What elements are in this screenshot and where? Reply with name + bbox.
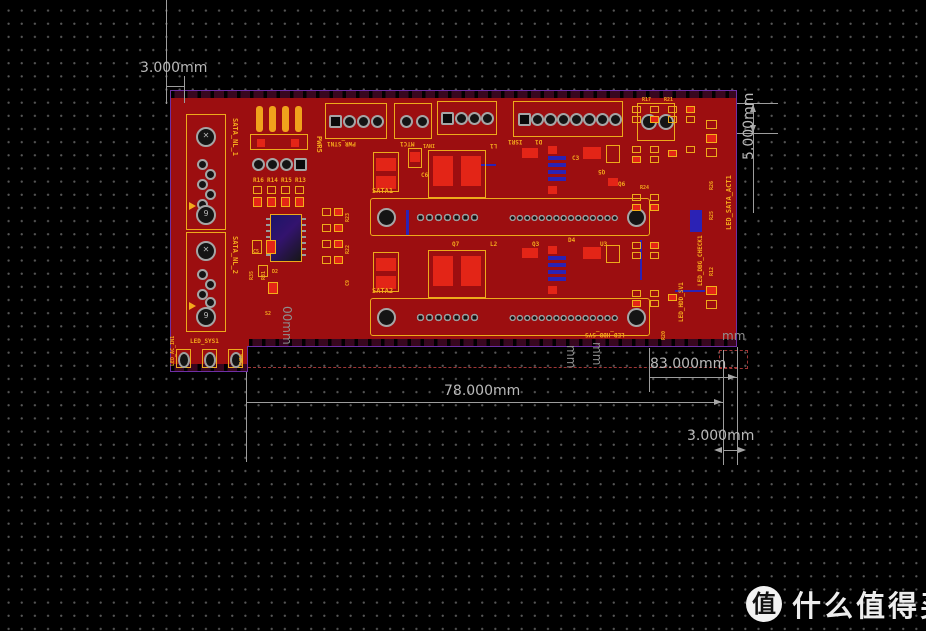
pad: [205, 279, 216, 290]
smd-pad: [291, 139, 299, 147]
label-l1: L1: [490, 142, 497, 148]
pad-mark: 9: [203, 311, 208, 320]
label-s2: S2: [265, 312, 271, 317]
pad-mark: ✕: [203, 131, 210, 140]
label-inv1: INV1: [423, 142, 435, 147]
passive: [650, 146, 659, 153]
label-sata-nl-2: SATA_NL_2: [229, 236, 238, 318]
passive: [706, 286, 717, 295]
resistor: [295, 197, 304, 207]
smd-pad: [522, 148, 538, 158]
smd-pad: [433, 156, 453, 186]
passive: [334, 256, 343, 264]
dim-line: [166, 86, 185, 87]
dim-bottom-right[interactable]: 3.000mm: [687, 429, 754, 443]
label-r23: R23: [346, 202, 352, 222]
mount-pad: [627, 308, 646, 327]
pad-9: 9: [196, 307, 216, 327]
smd-pad: [257, 139, 265, 147]
passive: [686, 116, 695, 123]
component-frame: [606, 145, 620, 163]
label-sata-nl-1: SATA_NL_1: [229, 118, 238, 200]
connector-sata-nl-1[interactable]: ✕ 9: [186, 114, 226, 230]
passive: [632, 204, 641, 211]
pad-square: [329, 115, 342, 128]
dim-fragment-mid-b: mm: [591, 342, 603, 372]
pad-9: 9: [196, 205, 216, 225]
label-r22: R22: [346, 234, 352, 254]
ic-u1[interactable]: [270, 214, 302, 262]
pad: [252, 158, 265, 171]
pad-keyed: ✕: [196, 241, 216, 261]
smd-pad: [522, 248, 538, 258]
dim-arrow: [728, 374, 736, 380]
dim-line-83: [649, 377, 737, 378]
pad-square: [518, 113, 531, 126]
pad: [205, 169, 216, 180]
smzdm-logo-icon: 值: [746, 586, 782, 622]
passive: [632, 156, 641, 163]
pad-mark: ✕: [203, 245, 210, 254]
label-led-dbg-check1: LED_DBG_CHECK1: [698, 194, 705, 286]
dim-line-3: [723, 450, 737, 451]
passive: [650, 300, 659, 307]
pad: [266, 158, 279, 171]
label-d4: D4: [568, 238, 575, 244]
mount-pad: [377, 308, 396, 327]
resistor: [295, 186, 304, 194]
smd-pad: [548, 286, 557, 294]
label-u3: U3: [600, 242, 607, 248]
label-r20: R20: [662, 314, 667, 340]
dim-arrow: [738, 447, 746, 453]
pad-row: [509, 213, 619, 223]
passive: [632, 106, 641, 113]
smd-pad: [376, 258, 396, 271]
led-footprint[interactable]: [202, 349, 217, 368]
dim-arrow: [714, 447, 722, 453]
passive: [322, 208, 331, 216]
smd-pad: [433, 256, 453, 286]
pad: [531, 113, 544, 126]
label-q7: Q7: [452, 242, 459, 248]
label-r25: R25: [710, 194, 715, 220]
passive: [650, 252, 659, 259]
pad: [400, 115, 413, 128]
label-l2: L2: [490, 242, 497, 248]
passive: [650, 290, 659, 297]
smd-pad: [583, 147, 601, 159]
connector-8pin[interactable]: [513, 101, 623, 137]
dim-right-height[interactable]: 5.000mm: [742, 86, 756, 160]
label-q6: Q6: [618, 182, 625, 188]
label-r12: R12: [710, 250, 715, 276]
label-sata1: SATA1: [372, 188, 393, 195]
dim-fragment-mid-a: mm: [565, 345, 577, 371]
pad: [544, 113, 557, 126]
pad: [205, 189, 216, 200]
inductor-coil: [548, 256, 566, 283]
dim-fragment-corner: mm: [722, 330, 745, 342]
passive: [632, 242, 641, 249]
label-r16: R16: [253, 178, 264, 184]
connector-sata1[interactable]: [370, 198, 650, 236]
pad: [596, 113, 609, 126]
label-r17: R17: [642, 98, 651, 103]
connector-mtc1[interactable]: [394, 103, 432, 139]
label-q3: Q3: [532, 242, 539, 248]
led-footprint[interactable]: [176, 349, 191, 368]
header-pin: [282, 106, 289, 132]
resistor: [281, 197, 290, 207]
label-led-ac-in1: LED_AC_IN1: [171, 322, 177, 366]
passive: [650, 194, 659, 201]
passive: [632, 116, 641, 123]
smd-pad: [583, 247, 601, 259]
pad-row: [416, 312, 479, 323]
resistor: [253, 197, 262, 207]
header-base[interactable]: [250, 134, 308, 150]
header-pin: [256, 106, 263, 132]
label-led-sata-act1: LED_SATA_ACT1: [726, 130, 734, 230]
label-r14: R14: [267, 178, 278, 184]
pin1-triangle-icon: [189, 302, 196, 310]
resistor: [281, 186, 290, 194]
smd-pad: [548, 146, 557, 154]
passive: [334, 208, 343, 216]
connector-pwr-stn1[interactable]: [325, 103, 387, 139]
passive: [266, 240, 276, 254]
pad: [583, 113, 596, 126]
smd-pad: [548, 246, 557, 254]
pad: [197, 159, 208, 170]
dim-ext-line: [246, 372, 247, 462]
label-isr1: ISR1: [508, 138, 522, 144]
smd-pad: [608, 178, 618, 186]
passive: [706, 300, 717, 309]
component-frame: [606, 245, 620, 263]
passive: [334, 224, 343, 232]
mount-pad: [377, 208, 396, 227]
label-c5: C5: [253, 250, 259, 255]
pcb-board[interactable]: ✕ 9 SATA_NL_1 ✕ 9 SATA_NL_2 PWR: [170, 90, 737, 372]
pad: [343, 115, 356, 128]
pad-square: [441, 112, 454, 125]
dim-fragment-left: 00mm: [280, 306, 293, 370]
passive: [686, 106, 695, 113]
passive: [668, 116, 677, 123]
passive: [650, 204, 659, 211]
passive: [632, 194, 641, 201]
passive: [706, 148, 717, 157]
label-c3: C3: [572, 156, 579, 162]
pad: [557, 113, 570, 126]
dim-top-left[interactable]: 3.000mm: [140, 61, 207, 75]
smd-pad: [376, 158, 396, 171]
passive: [706, 120, 717, 129]
smd-pad: [461, 156, 481, 186]
pad: [357, 115, 370, 128]
label-r15: R15: [281, 178, 292, 184]
label-r24: R24: [640, 186, 649, 191]
pcb-editor-canvas[interactable]: ✕ 9 SATA_NL_1 ✕ 9 SATA_NL_2 PWR: [0, 0, 926, 631]
label-pwr5: PWR5: [314, 136, 322, 168]
label-d1: D1: [535, 138, 542, 144]
dim-width-total[interactable]: 83.000mm: [650, 357, 726, 371]
smd-pad: [410, 152, 420, 162]
label-led-sys1: LED_SYS1: [190, 339, 219, 345]
passive: [334, 240, 343, 248]
passive: [668, 106, 677, 113]
watermark-site-name: 什么值得买: [792, 583, 926, 625]
pad: [468, 112, 481, 125]
passive: [650, 156, 659, 163]
ic-pins: [302, 218, 306, 260]
dim-line-78: [246, 402, 723, 403]
header-pin: [295, 106, 302, 132]
passive: [650, 242, 659, 249]
pad: [197, 269, 208, 280]
passive: [258, 265, 268, 277]
pad: [280, 158, 293, 171]
smd-pad: [461, 256, 481, 286]
label-mtc1: MTC1: [400, 140, 414, 146]
pad: [570, 113, 583, 126]
label-r21: R21: [664, 98, 673, 103]
passive: [650, 116, 659, 123]
passive: [322, 240, 331, 248]
label-r13: R13: [295, 178, 306, 184]
passive: [632, 290, 641, 297]
dim-width-inner[interactable]: 78.000mm: [444, 384, 520, 398]
watermark: 值 什么值得买: [746, 583, 926, 625]
connector-sata-nl-2[interactable]: ✕ 9: [186, 232, 226, 332]
passive: [268, 282, 278, 294]
resistor: [267, 197, 276, 207]
label-pwr4: PWR4: [240, 336, 246, 366]
passive: [686, 146, 695, 153]
passive: [668, 150, 677, 157]
label-r26: R26: [710, 164, 715, 190]
pad: [416, 115, 429, 128]
passive: [632, 146, 641, 153]
label-c9: C9: [346, 266, 352, 286]
pad-row: [509, 313, 619, 323]
passive: [632, 300, 641, 307]
passive: [668, 294, 677, 301]
pad-keyed: ✕: [196, 127, 216, 147]
smd-pad: [548, 186, 557, 194]
header-pin: [269, 106, 276, 132]
board-bottom-edge: [249, 339, 736, 346]
pad-row: [416, 212, 479, 223]
passive: [706, 134, 717, 143]
connector-4pin[interactable]: [437, 101, 497, 135]
label-sata2: SATA2: [372, 288, 393, 295]
passive: [322, 224, 331, 232]
resistor: [267, 186, 276, 194]
passive: [650, 106, 659, 113]
label-led-hdd-sv1: LED_HDD_SV1: [679, 240, 686, 322]
board-top-edge: [171, 91, 736, 98]
inductor-coil: [548, 156, 566, 183]
pad: [481, 112, 494, 125]
passive: [322, 256, 331, 264]
pad-mark: 9: [203, 209, 208, 218]
pad: [197, 179, 208, 190]
pad: [371, 115, 384, 128]
label-led-hdd-sys: LED_HDD_SYS: [585, 331, 625, 337]
resistor: [253, 186, 262, 194]
crosshair-line: [166, 0, 167, 104]
dim-arrow: [714, 399, 722, 405]
pad-square: [294, 158, 307, 171]
dim-ext-line: [184, 76, 185, 103]
label-d2: D2: [272, 270, 278, 275]
passive: [632, 252, 641, 259]
pad: [609, 113, 622, 126]
label-q5: Q5: [598, 168, 605, 174]
pad: [455, 112, 468, 125]
pin1-triangle-icon: [189, 202, 196, 210]
label-pwr-stn1: PWR_STN1: [327, 140, 356, 146]
